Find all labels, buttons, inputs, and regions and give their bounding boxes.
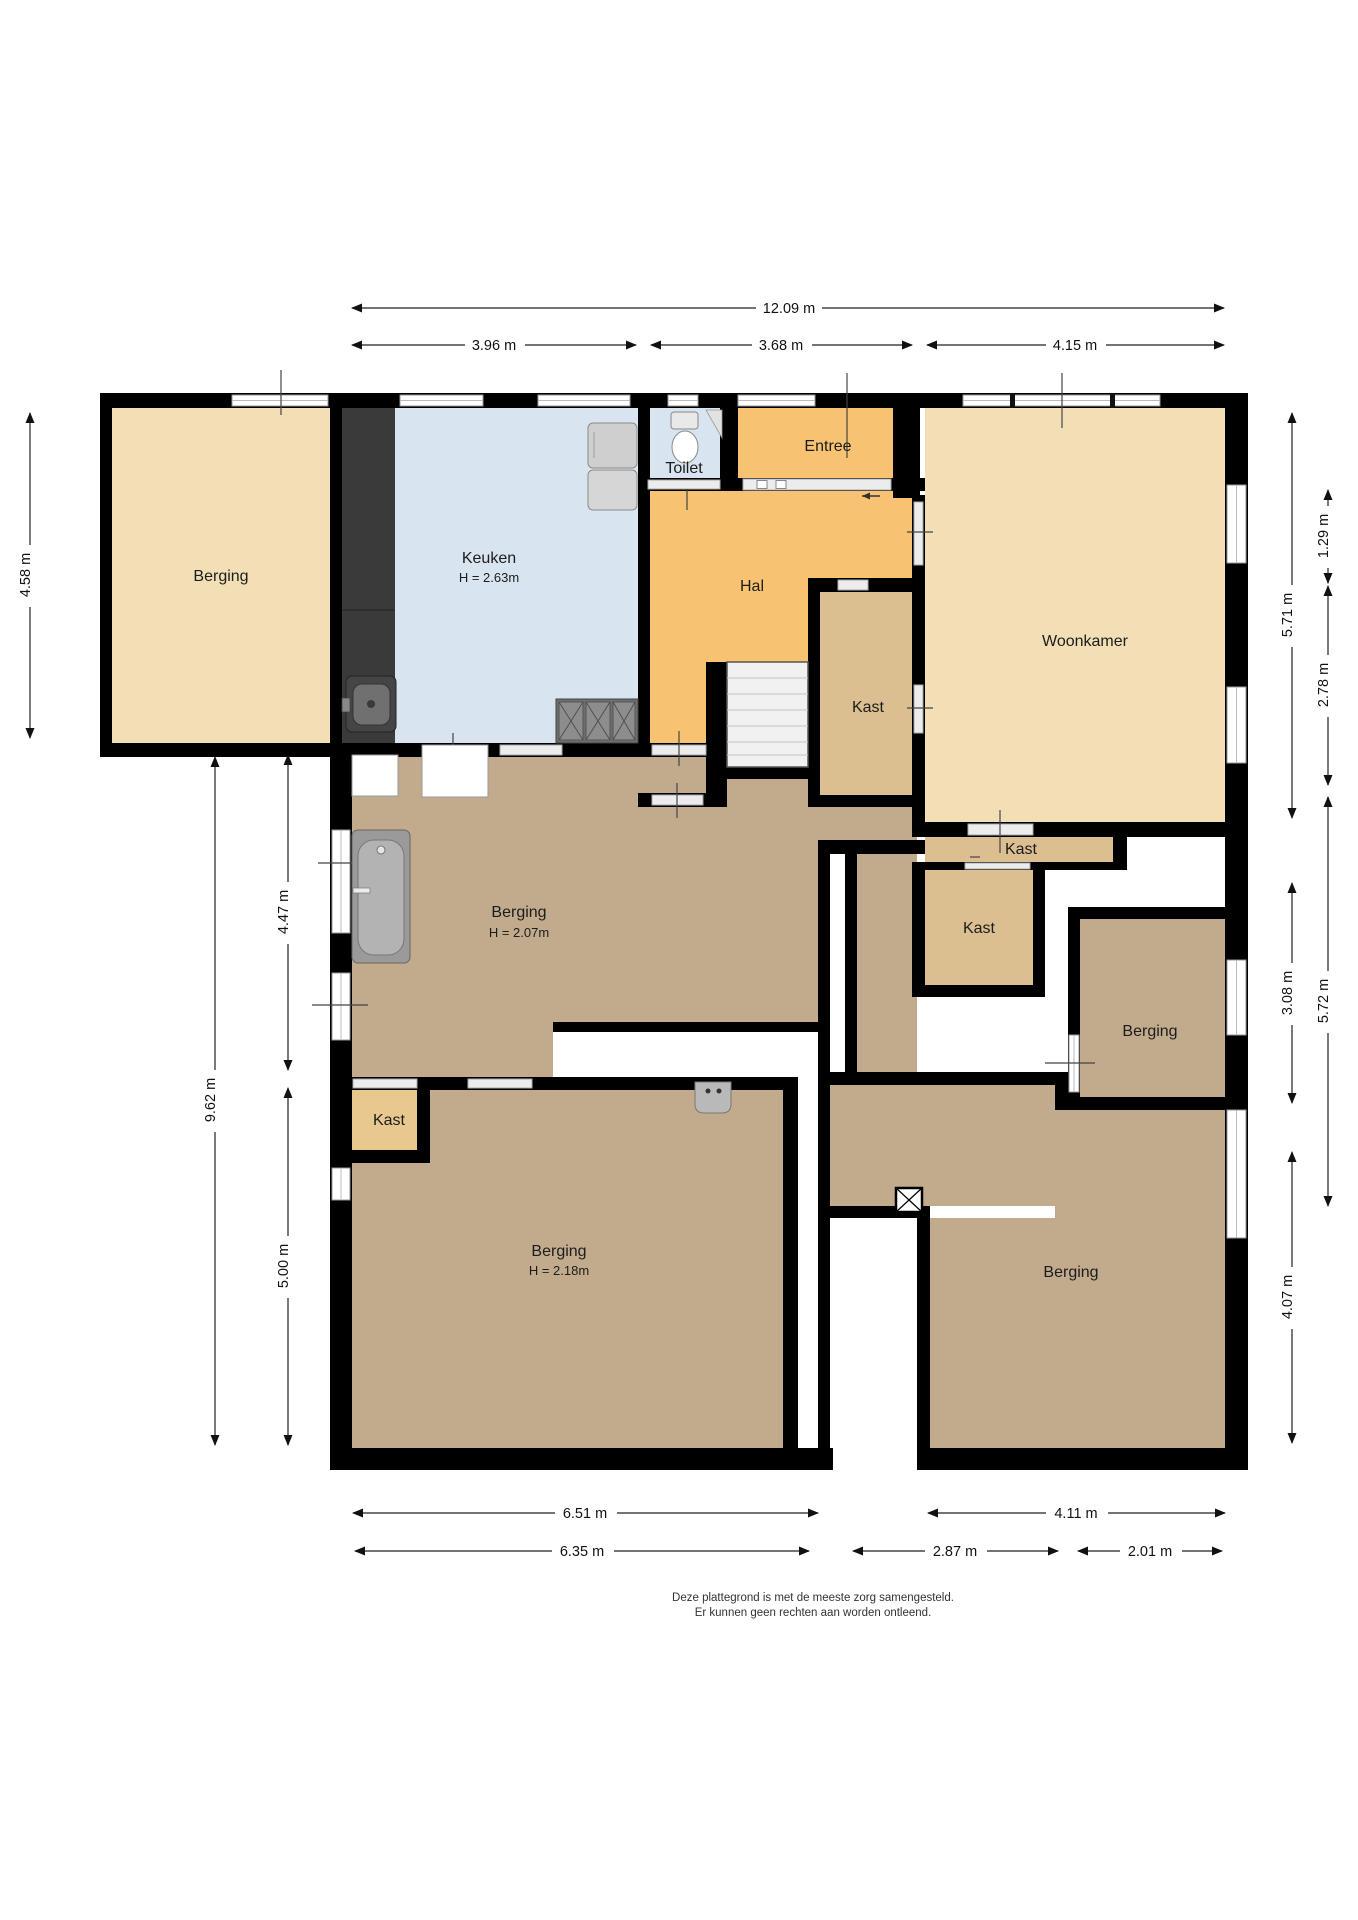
dim-right-upper-inner-2: 2.78 m — [1316, 663, 1332, 707]
room-woonkamer — [925, 408, 1225, 826]
dim-top-right: 4.15 m — [1053, 338, 1097, 354]
dim-left-inner-upper: 4.47 m — [276, 890, 292, 934]
room-hal-upper — [650, 489, 912, 584]
dim-bottom-right-inner: 2.01 m — [1128, 1544, 1172, 1560]
label-kast-bottom-left: Kast — [373, 1112, 406, 1129]
footer-line-1: Deze plattegrond is met de meeste zorg s… — [672, 1592, 954, 1604]
dim-left-upper: 4.58 m — [18, 553, 34, 597]
label-berging-bottom-left: Berging — [531, 1243, 586, 1260]
bathtub-icon — [352, 830, 410, 963]
label-entree: Entree — [804, 438, 851, 455]
dim-right-middle-inner: 3.08 m — [1280, 971, 1296, 1015]
dim-right-upper-total: 5.71 m — [1280, 593, 1296, 637]
label-toilet: Toilet — [665, 460, 703, 477]
label-kast-lower: Kast — [963, 920, 996, 937]
washer-icon — [352, 755, 398, 796]
boiler-icon — [695, 1082, 731, 1113]
label-kast-hal: Kast — [852, 699, 885, 716]
room-berging-middle-f — [352, 1022, 553, 1079]
dim-bottom-left-outer: 6.51 m — [563, 1506, 607, 1522]
room-berging-bottom-right-a — [830, 1085, 1055, 1206]
room-berging-middle-d — [727, 779, 818, 809]
dim-right-middle-total: 5.72 m — [1316, 979, 1332, 1023]
room-kast-hal — [820, 590, 913, 797]
label-berging-middle: Berging — [491, 904, 546, 921]
staircase — [727, 662, 808, 767]
dim-right-upper-inner-1: 1.29 m — [1316, 514, 1332, 558]
floor-plan-page: Berging Keuken H = 2.63m Toilet Entree H… — [0, 0, 1358, 1920]
room-berging-right — [1080, 917, 1227, 1097]
room-berging-bottom-right-b — [1055, 1110, 1227, 1218]
dim-bottom-right-outer: 4.11 m — [1054, 1506, 1097, 1522]
footer: Deze plattegrond is met de meeste zorg s… — [672, 1592, 954, 1619]
dim-top-total: 12.09 m — [763, 301, 815, 317]
label-berging-middle-height: H = 2.07m — [489, 925, 549, 940]
dim-bottom-left-inner: 6.35 m — [560, 1544, 604, 1560]
label-hal: Hal — [740, 578, 764, 595]
label-berging-bottom-left-height: H = 2.18m — [529, 1263, 589, 1278]
label-woonkamer: Woonkamer — [1042, 633, 1129, 650]
label-kast-upper: Kast — [1005, 841, 1038, 858]
dim-bottom-middle-inner: 2.87 m — [933, 1544, 977, 1560]
label-keuken-height: H = 2.63m — [459, 570, 519, 585]
dim-right-lower: 4.07 m — [1280, 1275, 1296, 1319]
label-berging-right: Berging — [1122, 1023, 1177, 1040]
chimney-box-icon — [896, 1188, 922, 1212]
label-keuken: Keuken — [462, 550, 516, 567]
toilet-bowl-icon — [672, 431, 698, 463]
room-corridor — [857, 854, 917, 1074]
dim-top-left: 3.96 m — [472, 338, 516, 354]
label-berging-bottom-right: Berging — [1043, 1264, 1098, 1281]
dim-left-lower-total: 9.62 m — [203, 1078, 219, 1122]
stove-icon — [556, 699, 638, 743]
room-fills — [106, 400, 1227, 1448]
room-berging-middle-c — [650, 805, 818, 1023]
room-berging-middle-e — [818, 807, 917, 842]
toilet-cistern — [671, 412, 698, 429]
dim-top-middle: 3.68 m — [759, 338, 803, 354]
room-berging-bottom-right-c — [930, 1218, 1227, 1448]
label-berging-top-left: Berging — [193, 568, 248, 585]
floor-plan-svg: Berging Keuken H = 2.63m Toilet Entree H… — [0, 0, 1358, 1920]
dryer-icon — [422, 745, 488, 797]
dim-left-inner-lower: 5.00 m — [276, 1244, 292, 1288]
footer-line-2: Er kunnen geen rechten aan worden ontlee… — [695, 1607, 932, 1619]
kitchen-sink-icon — [342, 676, 396, 732]
fridge-icon — [588, 423, 637, 510]
